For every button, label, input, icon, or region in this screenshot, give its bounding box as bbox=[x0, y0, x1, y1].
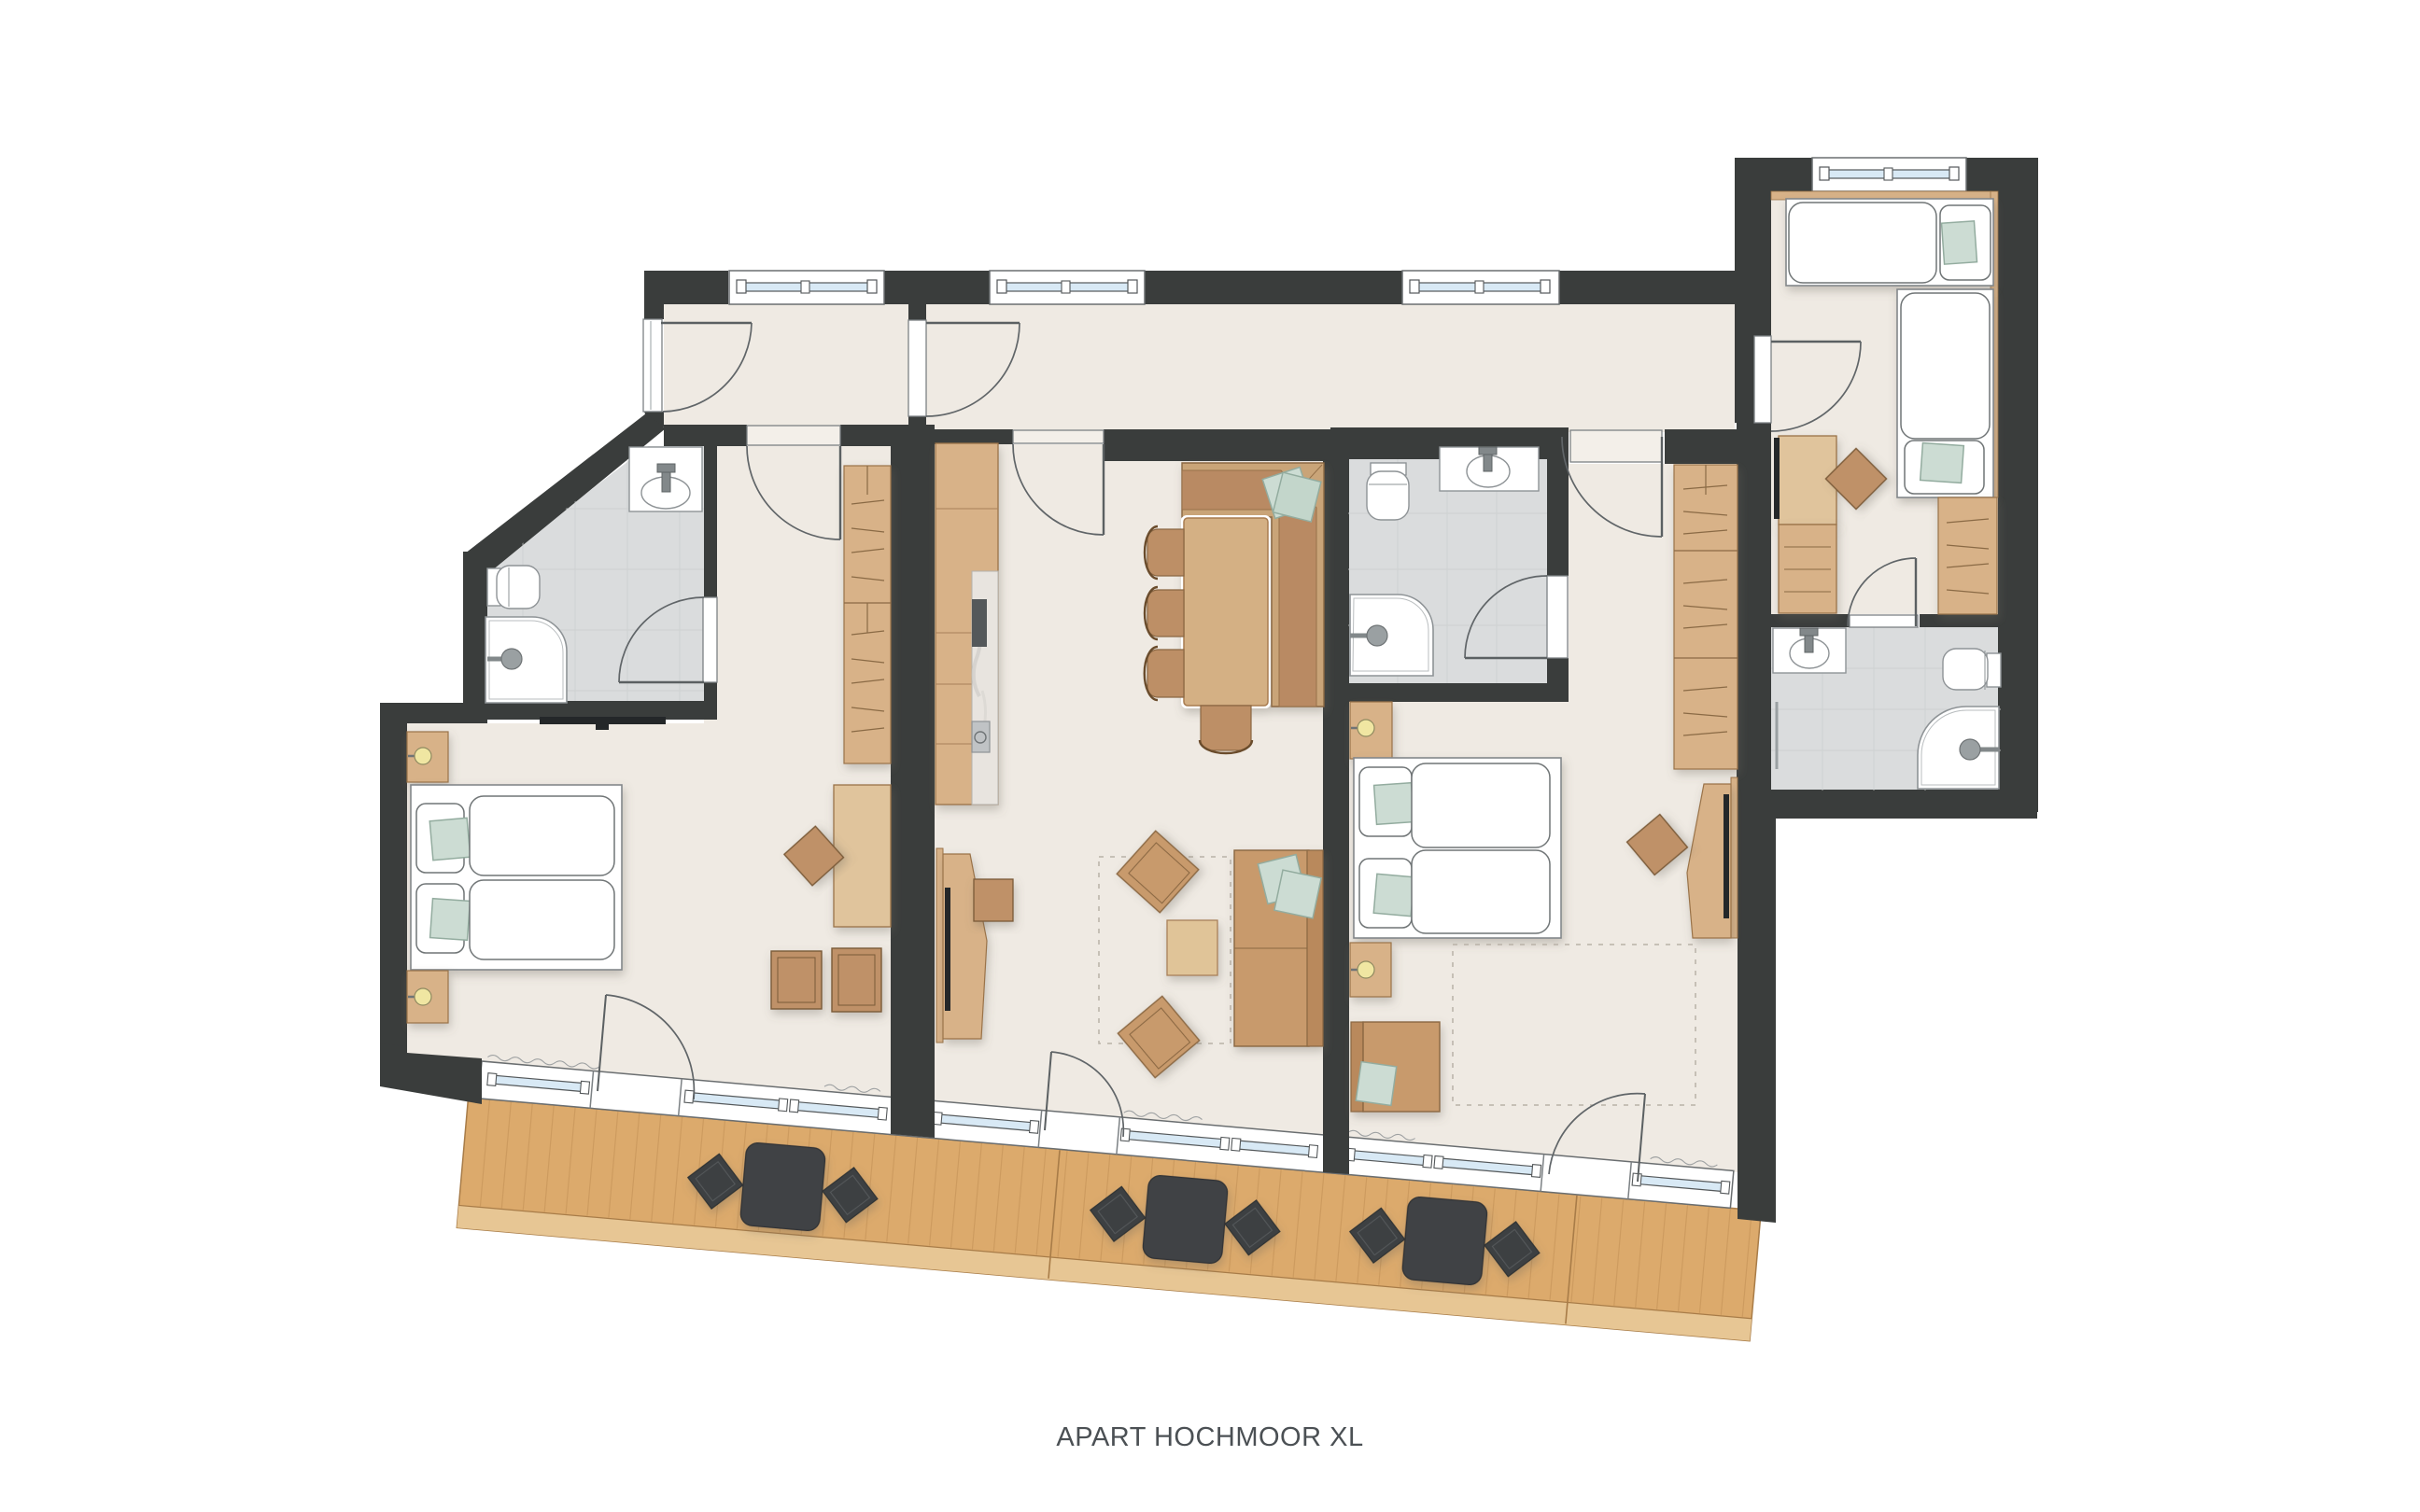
svg-text:APART HOCHMOOR XL: APART HOCHMOOR XL bbox=[1056, 1422, 1363, 1452]
